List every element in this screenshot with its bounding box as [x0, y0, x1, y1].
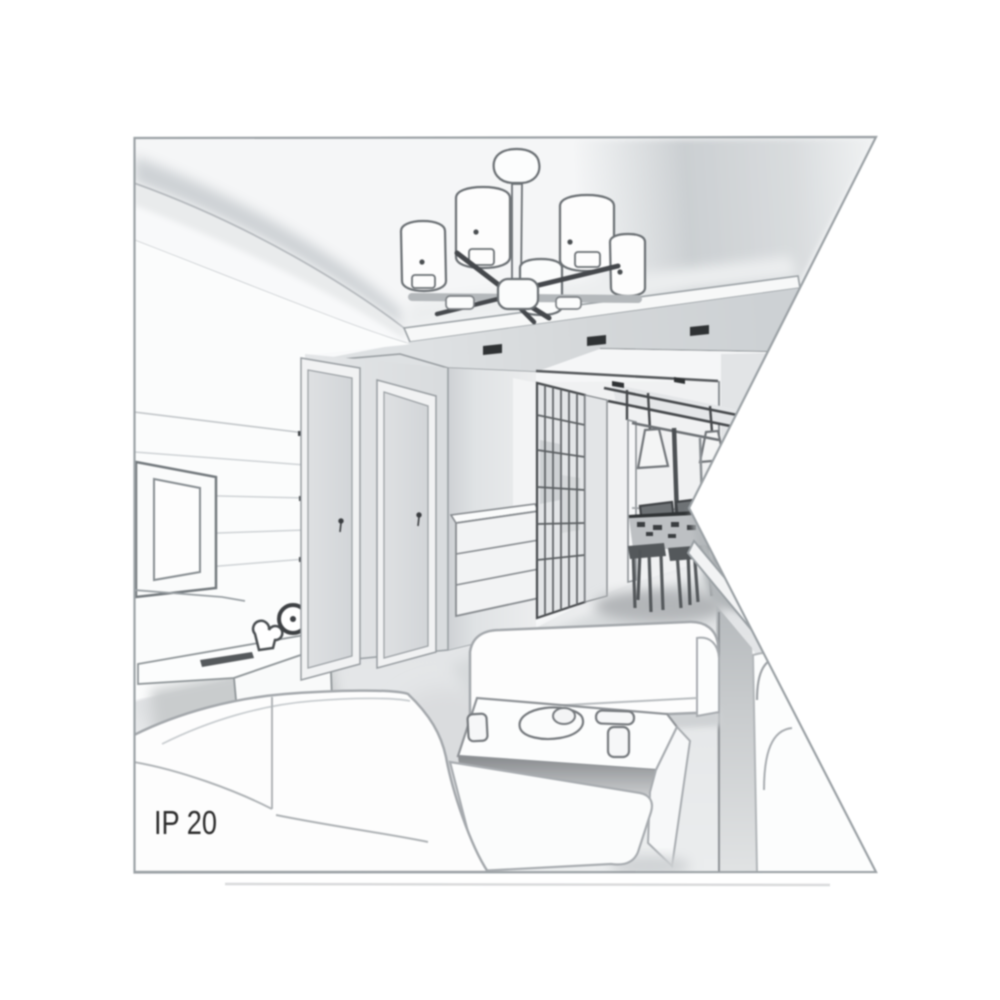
svg-text:IP 20: IP 20 [154, 804, 217, 841]
